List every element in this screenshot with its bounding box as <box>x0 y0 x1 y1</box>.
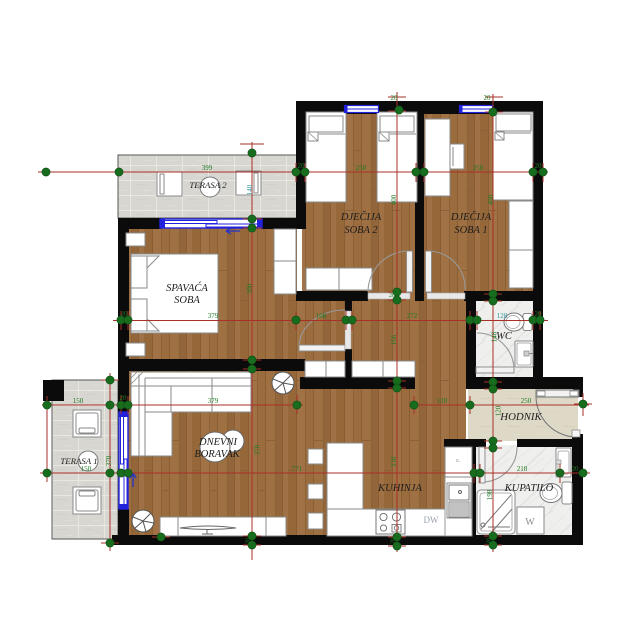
svg-text:250: 250 <box>356 164 367 172</box>
svg-text:20: 20 <box>246 538 252 544</box>
svg-text:u.: u. <box>456 458 461 464</box>
svg-text:20: 20 <box>535 162 543 170</box>
svg-text:379: 379 <box>208 312 219 320</box>
svg-text:20: 20 <box>121 310 129 318</box>
svg-text:SOBA 2: SOBA 2 <box>344 225 378 236</box>
svg-text:150: 150 <box>81 465 92 473</box>
svg-text:20: 20 <box>391 538 397 544</box>
svg-text:370: 370 <box>105 455 113 466</box>
svg-text:20: 20 <box>572 465 580 473</box>
svg-text:20: 20 <box>389 293 395 299</box>
svg-text:20: 20 <box>298 162 306 170</box>
svg-text:DW: DW <box>424 515 439 525</box>
svg-text:140: 140 <box>246 184 254 195</box>
svg-text:399: 399 <box>202 164 213 172</box>
svg-text:KUHINJA: KUHINJA <box>377 483 422 494</box>
svg-text:150: 150 <box>73 397 84 405</box>
svg-text:WC: WC <box>496 331 513 342</box>
svg-text:KUPATILO: KUPATILO <box>504 483 554 494</box>
svg-text:400: 400 <box>390 194 398 205</box>
svg-text:DJEČIJA: DJEČIJA <box>450 211 492 223</box>
svg-text:TERASA 2: TERASA 2 <box>189 180 227 190</box>
svg-text:166: 166 <box>390 334 398 345</box>
svg-text:250: 250 <box>473 164 484 172</box>
svg-text:20: 20 <box>391 94 399 102</box>
svg-text:DNEVNI: DNEVNI <box>198 437 237 448</box>
svg-text:379: 379 <box>208 397 219 405</box>
svg-text:20: 20 <box>120 394 128 402</box>
svg-text:SOBA 1: SOBA 1 <box>454 225 487 236</box>
svg-text:SOBA: SOBA <box>174 295 200 306</box>
svg-text:SPAVAĆA: SPAVAĆA <box>166 282 208 294</box>
svg-text:20: 20 <box>487 538 493 544</box>
svg-text:TERASA 1: TERASA 1 <box>60 456 97 466</box>
svg-text:330: 330 <box>390 456 398 467</box>
svg-text:370: 370 <box>254 444 262 455</box>
svg-text:20: 20 <box>535 310 543 318</box>
svg-text:128: 128 <box>497 312 508 320</box>
svg-text:W: W <box>525 517 535 528</box>
svg-text:400: 400 <box>487 194 495 205</box>
svg-text:128: 128 <box>437 397 448 405</box>
svg-text:198: 198 <box>486 489 494 500</box>
svg-text:250: 250 <box>521 397 532 405</box>
svg-text:HODNIK: HODNIK <box>499 411 542 423</box>
svg-text:218: 218 <box>517 465 528 473</box>
svg-text:108: 108 <box>316 312 327 320</box>
svg-text:771: 771 <box>292 465 303 473</box>
svg-text:272: 272 <box>407 312 418 320</box>
svg-text:BORAVAK: BORAVAK <box>194 449 240 460</box>
svg-text:20: 20 <box>484 94 492 102</box>
svg-text:DJEČIJA: DJEČIJA <box>340 211 382 223</box>
svg-text:300: 300 <box>246 283 254 294</box>
